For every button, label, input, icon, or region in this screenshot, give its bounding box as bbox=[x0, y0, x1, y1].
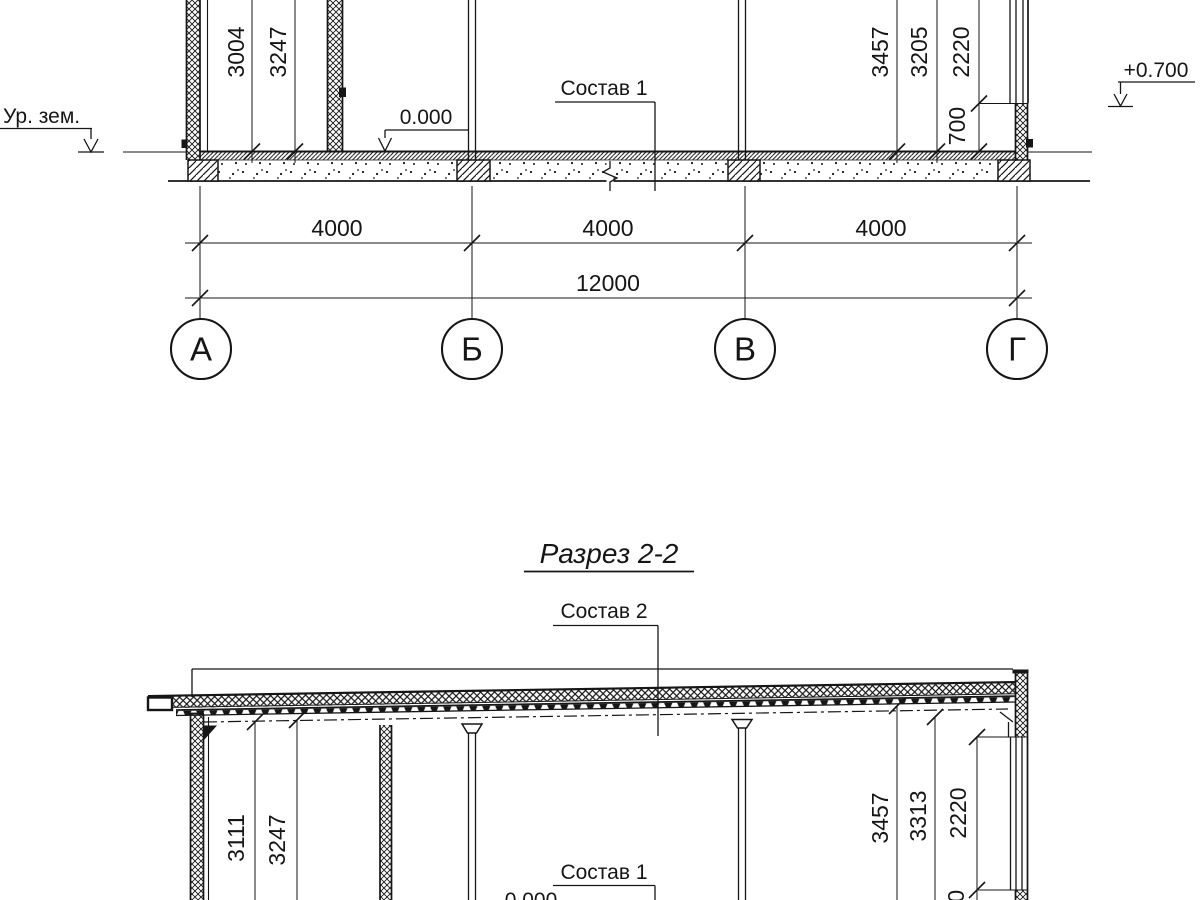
plus-700-label: +0.700 bbox=[1124, 59, 1189, 82]
floor-slab bbox=[168, 152, 1090, 182]
parapet-axis-g-2 bbox=[977, 670, 1029, 900]
axis-bubbles: А Б В Г bbox=[171, 319, 1047, 379]
ground-level-mark: Ур. зем. bbox=[0, 105, 186, 152]
section-2-title-text: Разрез 2-2 bbox=[540, 538, 679, 569]
wall-a-waterproofing-dot bbox=[182, 140, 188, 149]
dim-3247-top: 3247 bbox=[265, 26, 291, 77]
vertical-dims-left-2: 3111 3247 bbox=[223, 712, 305, 900]
sill-masonry-2 bbox=[1016, 890, 1028, 900]
plus-700-arrow-icon bbox=[1114, 94, 1127, 106]
roof-callout-label: Состав 2 bbox=[560, 600, 647, 623]
wall-corbel bbox=[204, 726, 217, 741]
window-glazing-lines bbox=[1011, 737, 1023, 890]
column-v-1 bbox=[739, 0, 746, 160]
ground-leader-line bbox=[0, 129, 92, 140]
dim-12000: 12000 bbox=[576, 270, 640, 296]
ground-arrow-icon bbox=[84, 139, 98, 152]
dim-4000-bv: 4000 bbox=[582, 215, 633, 241]
dim-3247-bottom: 3247 bbox=[264, 814, 290, 865]
column-b-capital bbox=[462, 724, 482, 733]
partition-dot bbox=[339, 88, 346, 98]
section-2-title: Разрез 2-2 bbox=[524, 538, 694, 572]
dim-3205: 3205 bbox=[906, 26, 932, 77]
wall-axis-a bbox=[182, 0, 208, 160]
dim-3111: 3111 bbox=[223, 814, 249, 862]
dim-4000-ab: 4000 bbox=[311, 215, 362, 241]
foundation-b bbox=[457, 160, 490, 181]
roof-assembly bbox=[148, 682, 1015, 722]
roof-edge-chamfer bbox=[1000, 712, 1013, 737]
axis-label-v: В bbox=[734, 331, 756, 368]
zero-elevation-mark-1: 0.000 bbox=[379, 106, 469, 151]
wall-axis-a-2 bbox=[190, 714, 217, 900]
eave-drip-box bbox=[148, 698, 172, 711]
column-b-2 bbox=[462, 724, 482, 900]
axis-label-g: Г bbox=[1008, 331, 1026, 368]
floor-callout-label-1: Состав 1 bbox=[560, 77, 647, 100]
sill-masonry-1 bbox=[1016, 104, 1028, 160]
wall-axis-g bbox=[1010, 0, 1092, 160]
section-2: Разрез 2-2 Состав 2 bbox=[148, 538, 1029, 900]
vertical-dims-left-1: 3004 3247 bbox=[223, 0, 303, 163]
column-b-1 bbox=[469, 0, 476, 160]
column-v-2 bbox=[732, 720, 752, 900]
ground-level-label: Ур. зем. bbox=[3, 105, 80, 128]
dim-2220-bottom: 2220 bbox=[945, 787, 971, 838]
axis-label-a: А bbox=[190, 331, 212, 368]
section-1: Ур. зем. bbox=[0, 0, 1195, 379]
foundation-v bbox=[728, 160, 760, 181]
column-v-capital bbox=[732, 720, 752, 729]
dim-700-top: 700 bbox=[944, 107, 970, 145]
partition-wall-1 bbox=[328, 0, 347, 152]
dim-2220-top: 2220 bbox=[948, 26, 974, 77]
foundation-g bbox=[998, 160, 1030, 181]
vertical-dims-right-2: 3457 3313 2220 700 bbox=[867, 698, 985, 900]
dim-4000-vg: 4000 bbox=[855, 215, 906, 241]
zero-elevation-label-2: 0.000 bbox=[505, 889, 558, 900]
dimension-chain: 4000 4000 4000 12000 bbox=[185, 186, 1032, 319]
drawing-sheet: Ур. зем. bbox=[0, 0, 1200, 900]
dim-3004: 3004 bbox=[223, 26, 249, 77]
zero-arrow-icon bbox=[379, 138, 392, 151]
zero-elevation-label: 0.000 bbox=[400, 106, 453, 129]
foundation-a bbox=[188, 160, 218, 181]
plus-700-mark: +0.700 bbox=[1108, 59, 1195, 107]
dim-3457-bottom: 3457 bbox=[867, 792, 893, 843]
dim-3313: 3313 bbox=[905, 790, 931, 841]
wall-g-waterproofing-dot bbox=[1026, 139, 1033, 148]
partition-wall-2 bbox=[380, 725, 392, 900]
vertical-dims-right-1: 3457 3205 2220 700 bbox=[867, 0, 1028, 163]
dim-700-bottom: 700 bbox=[943, 890, 969, 900]
dim-3457-top: 3457 bbox=[867, 26, 893, 77]
drawing-canvas: Ур. зем. bbox=[0, 0, 1200, 900]
floor-callout-label-2: Состав 1 bbox=[560, 861, 647, 884]
wall-a-hatch bbox=[187, 0, 200, 160]
axis-extension-lines bbox=[200, 186, 1017, 319]
axis-label-b: Б bbox=[461, 331, 483, 368]
floor-callout-2: Состав 1 bbox=[553, 861, 655, 900]
